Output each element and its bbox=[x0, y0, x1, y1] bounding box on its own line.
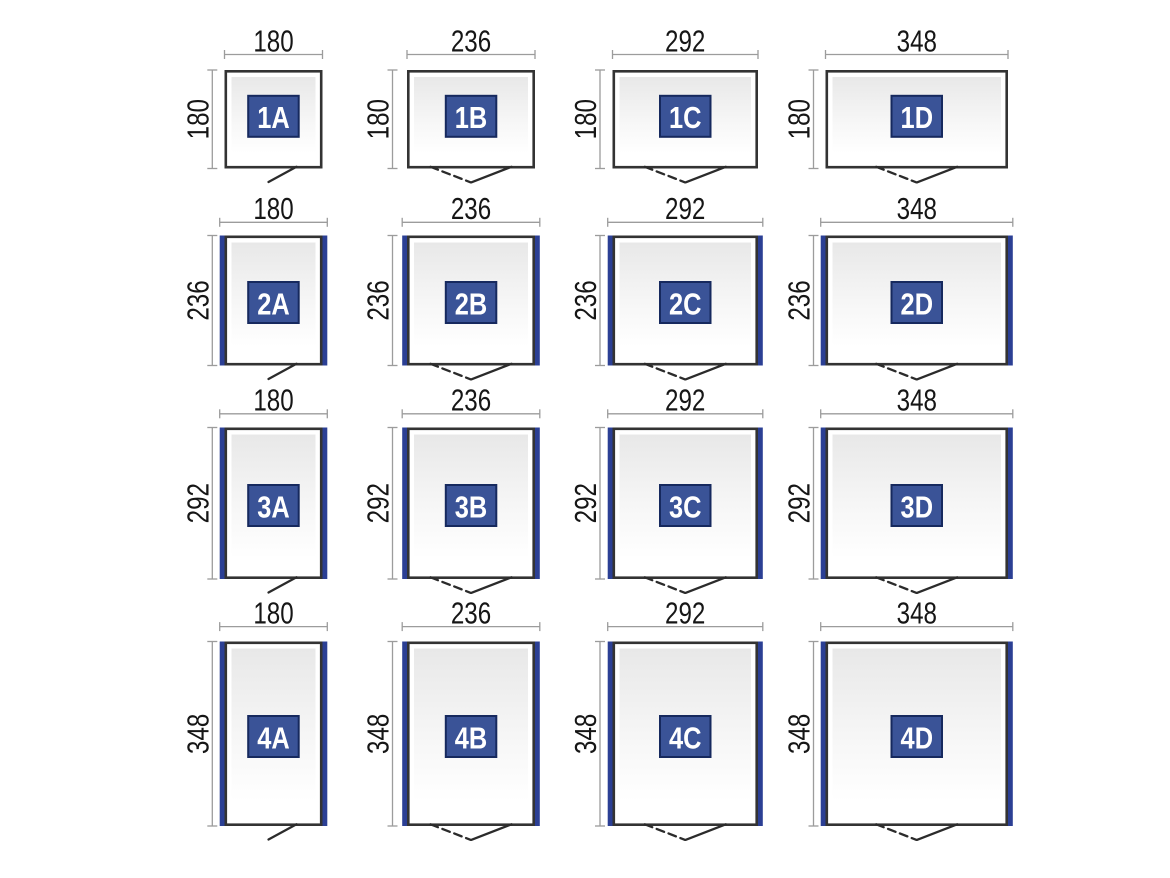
svg-text:4D: 4D bbox=[901, 721, 933, 756]
svg-text:236: 236 bbox=[451, 191, 491, 226]
svg-text:180: 180 bbox=[253, 596, 293, 631]
svg-text:292: 292 bbox=[665, 23, 705, 58]
svg-text:180: 180 bbox=[782, 99, 817, 139]
svg-text:292: 292 bbox=[665, 383, 705, 418]
svg-text:236: 236 bbox=[782, 280, 817, 320]
svg-text:348: 348 bbox=[782, 714, 817, 754]
svg-text:2B: 2B bbox=[455, 287, 487, 322]
svg-text:4B: 4B bbox=[455, 721, 487, 756]
svg-text:180: 180 bbox=[253, 23, 293, 58]
svg-text:348: 348 bbox=[180, 714, 215, 754]
svg-text:348: 348 bbox=[361, 714, 396, 754]
svg-text:292: 292 bbox=[665, 191, 705, 226]
svg-text:348: 348 bbox=[897, 23, 937, 58]
svg-text:1B: 1B bbox=[455, 101, 487, 136]
svg-text:236: 236 bbox=[451, 383, 491, 418]
svg-text:236: 236 bbox=[568, 280, 603, 320]
svg-text:292: 292 bbox=[665, 596, 705, 631]
svg-text:292: 292 bbox=[568, 483, 603, 523]
svg-text:2A: 2A bbox=[257, 287, 289, 322]
svg-text:180: 180 bbox=[568, 99, 603, 139]
svg-text:292: 292 bbox=[180, 483, 215, 523]
svg-text:2D: 2D bbox=[901, 287, 933, 322]
svg-text:3D: 3D bbox=[901, 490, 933, 525]
svg-text:180: 180 bbox=[253, 383, 293, 418]
svg-text:1C: 1C bbox=[669, 101, 701, 136]
svg-text:348: 348 bbox=[897, 191, 937, 226]
svg-text:236: 236 bbox=[361, 280, 396, 320]
svg-text:236: 236 bbox=[451, 23, 491, 58]
svg-text:1A: 1A bbox=[257, 101, 289, 136]
svg-text:236: 236 bbox=[180, 280, 215, 320]
svg-text:236: 236 bbox=[451, 596, 491, 631]
svg-text:180: 180 bbox=[253, 191, 293, 226]
svg-text:1D: 1D bbox=[901, 101, 933, 136]
svg-text:180: 180 bbox=[361, 99, 396, 139]
svg-text:3A: 3A bbox=[257, 490, 289, 525]
svg-text:292: 292 bbox=[361, 483, 396, 523]
svg-text:348: 348 bbox=[568, 714, 603, 754]
svg-text:348: 348 bbox=[897, 383, 937, 418]
svg-text:292: 292 bbox=[782, 483, 817, 523]
svg-text:4A: 4A bbox=[257, 721, 289, 756]
svg-text:3B: 3B bbox=[455, 490, 487, 525]
svg-text:348: 348 bbox=[897, 596, 937, 631]
svg-text:2C: 2C bbox=[669, 287, 701, 322]
svg-text:180: 180 bbox=[180, 99, 215, 139]
svg-text:3C: 3C bbox=[669, 490, 701, 525]
svg-text:4C: 4C bbox=[669, 721, 701, 756]
